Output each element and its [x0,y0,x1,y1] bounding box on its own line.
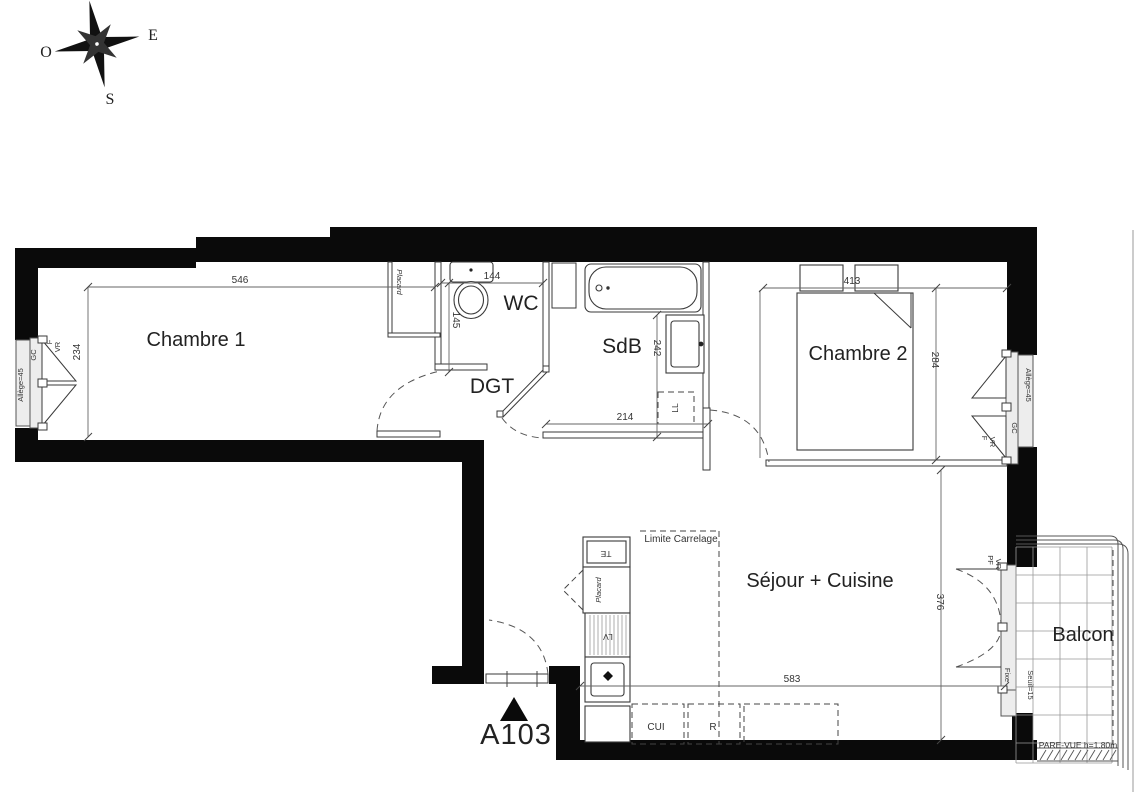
balcony-door-fixe-pane [1001,690,1016,716]
bathtub-faucet [596,285,602,291]
door-chambre2-leaf [703,408,710,470]
chambre1-label: Chambre 1 [147,329,246,351]
dgt-label: DGT [470,375,515,398]
dim-242: 242 [651,340,662,357]
dim-145: 145 [450,312,461,329]
bed [797,293,913,450]
fridge-label: R [709,722,716,733]
dim-376: 376 [934,594,945,611]
wall-sejour-left [462,440,484,683]
pf-sejour-label: PF [986,555,995,565]
door-chambre1-swing [377,371,440,431]
electrical-panel-label: TE [600,549,611,559]
nightstand-left [800,265,843,291]
window-right-jamb-top [1002,350,1011,357]
wall-top-mid [196,237,330,262]
placard-chambre1-label: Placard [395,269,404,295]
sdb-column [552,263,576,308]
bathtub-inner [589,267,697,309]
balcony-door-mullion [998,623,1007,631]
apartment-number: A103 [480,719,552,751]
partition-placard-bottom [388,333,440,337]
partition-sdb-left [543,262,549,370]
window-right-jamb-bottom [1002,457,1011,464]
dim-234: 234 [72,343,83,360]
seuil-label: Seuil=15 [1026,670,1035,699]
wall-bottom [556,740,1037,760]
counter-extension-box [744,704,838,744]
wall-chambre1-bottom [15,440,484,462]
window-left-mullion [38,379,47,387]
window-left-jamb-bottom [38,423,47,430]
partition-wc-left [435,262,441,368]
kitchen-counter-corner [585,706,630,742]
gc-right-label: GC [1010,422,1019,434]
wall-entry-left-jamb [432,666,484,684]
pare-vue-label: PARE-VUE h=1.80m [1039,740,1118,750]
window-right-mullion [1002,403,1011,411]
tiling-limit-line [640,531,719,744]
partition-sdb-bottom [543,432,710,438]
vr-sejour-label: VR [994,559,1003,570]
allege-right-label: Allège=45 [1024,368,1033,402]
sdb-washbasin-faucet [699,342,704,347]
compass-west-label: O [40,44,52,61]
window-chambre2 [972,350,1033,464]
door-entry-leaf [486,674,548,683]
dim-284: 284 [929,352,940,369]
dishwasher-label: LV [603,632,613,642]
balcon-label: Balcon [1052,624,1113,646]
door-entry-swing [489,620,548,674]
allege-left-label: Allège=45 [16,368,25,402]
cooker-label: CUI [647,722,664,733]
floor-plan-drawing: E O S [0,0,1137,800]
entry-arrow-marker [500,697,528,721]
washing-machine-label: LL [670,403,680,413]
partition-wc-bottom [435,364,487,370]
entry-closet-box [583,567,630,613]
nightstand-right [855,265,898,291]
sdb-washbasin-inner [671,321,699,367]
doors [377,366,769,687]
wall-right-upper [1007,227,1037,355]
window-chambre1 [16,336,76,430]
window-left-casement-bottom [42,385,76,426]
partition-chambre2-bottom [766,460,1007,466]
wc-label: WC [504,292,539,315]
compass-rose: E O S [40,0,158,108]
dim-144: 144 [484,271,501,282]
vr-left-label: VR [53,341,62,352]
toilet-button [469,268,472,271]
balcony [1016,536,1128,770]
wall-right-lower-pier [1012,713,1033,760]
sejour-label: Séjour + Cuisine [746,570,893,592]
gc-left-label: GC [29,349,38,361]
balcony-door-swing-bottom [956,630,1001,667]
chambre2-label: Chambre 2 [809,343,908,365]
dim-413: 413 [844,276,861,287]
f-right-label: F [980,436,989,441]
compass-east-label: E [148,27,158,44]
wall-right-mid [1007,447,1037,567]
balcony-door-swing-top [956,569,1001,624]
bathtub-drain [606,286,609,289]
toilet-bowl-inner [459,286,484,314]
compass-south-label: S [106,91,115,108]
door-chambre1-leaf [377,431,440,437]
balcony-door [956,563,1016,716]
fixe-label: Fixe [1003,668,1012,682]
door-sdb-cap-low [497,411,503,417]
entry-closet-door-mark [563,570,583,610]
wall-top-left [15,248,196,268]
dim-583: 583 [784,674,801,685]
wall-top-right [330,227,1037,262]
dim-214: 214 [617,412,634,423]
placard-entree-label: Placard [594,576,603,602]
tiling-limit-label: Limite Carrelage [644,534,718,545]
vr-right-label: VR [988,437,997,448]
dim-546: 546 [232,275,249,286]
partition-placard-side [388,262,392,335]
floor-plan-sheet: E O S [0,0,1137,800]
door-sdb-swing [502,418,542,438]
wall-left-upper [15,248,38,340]
sdb-label: SdB [602,335,642,358]
window-right-casement-top [972,356,1006,398]
balcony-door-jamb-bottom [998,686,1007,693]
door-sdb-cap-high [543,366,549,372]
